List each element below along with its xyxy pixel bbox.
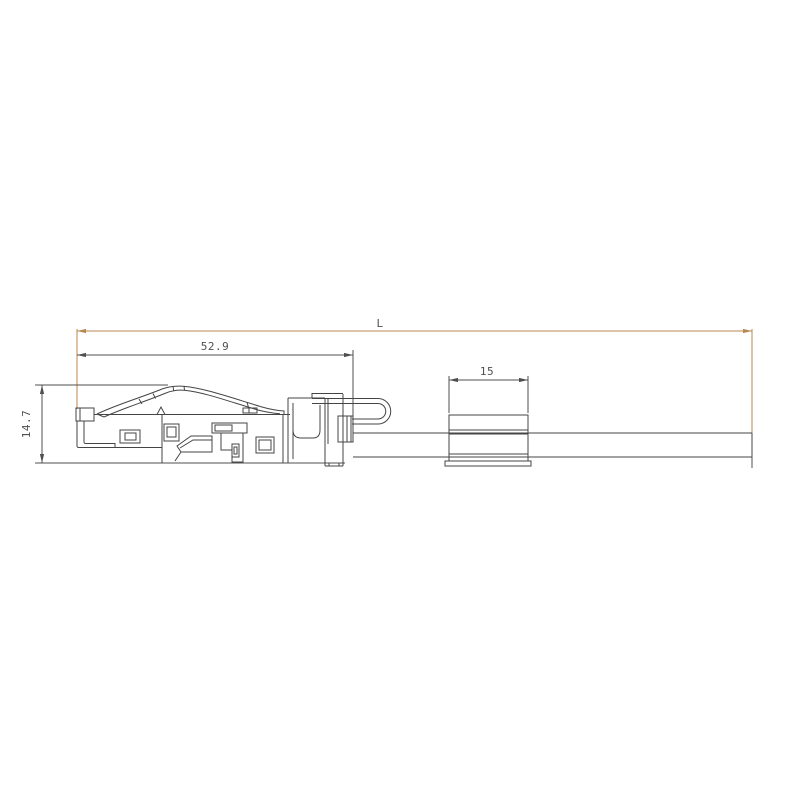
dimension-label-sleeve-length: 15 [480, 365, 494, 378]
plug-detail-windows [120, 423, 274, 462]
marker-sleeve [445, 415, 531, 466]
cable-lines [353, 433, 752, 457]
arrowhead-right [519, 378, 528, 382]
arrowhead-bottom [40, 454, 44, 463]
clamp-outline [338, 416, 353, 442]
dimension-plug-length: 52.9 [77, 340, 353, 437]
dimension-label-overall-length: L [376, 317, 383, 330]
dimension-label-plug-height: 14.7 [20, 410, 33, 439]
arrowhead-right [743, 329, 752, 333]
drawing-canvas: L 52.9 15 14.7 [0, 0, 800, 800]
dimension-sleeve-length: 15 [449, 365, 528, 413]
dimension-label-plug-length: 52.9 [201, 340, 230, 353]
technical-drawing: L 52.9 15 14.7 [0, 0, 800, 800]
arrowhead-top [40, 385, 44, 394]
connector-plug-outline [76, 386, 290, 463]
arrowhead-right [344, 353, 353, 357]
arrowhead-left [77, 353, 86, 357]
boot-outline [288, 394, 343, 467]
arrowhead-left [449, 378, 458, 382]
sleeve-outline [445, 415, 531, 466]
strain-relief-boot [288, 394, 343, 467]
latch-arc [97, 386, 284, 417]
arrowhead-left [77, 329, 86, 333]
cable [353, 433, 752, 457]
cable-clamp [338, 416, 353, 442]
dimension-plug-height: 14.7 [20, 385, 345, 463]
